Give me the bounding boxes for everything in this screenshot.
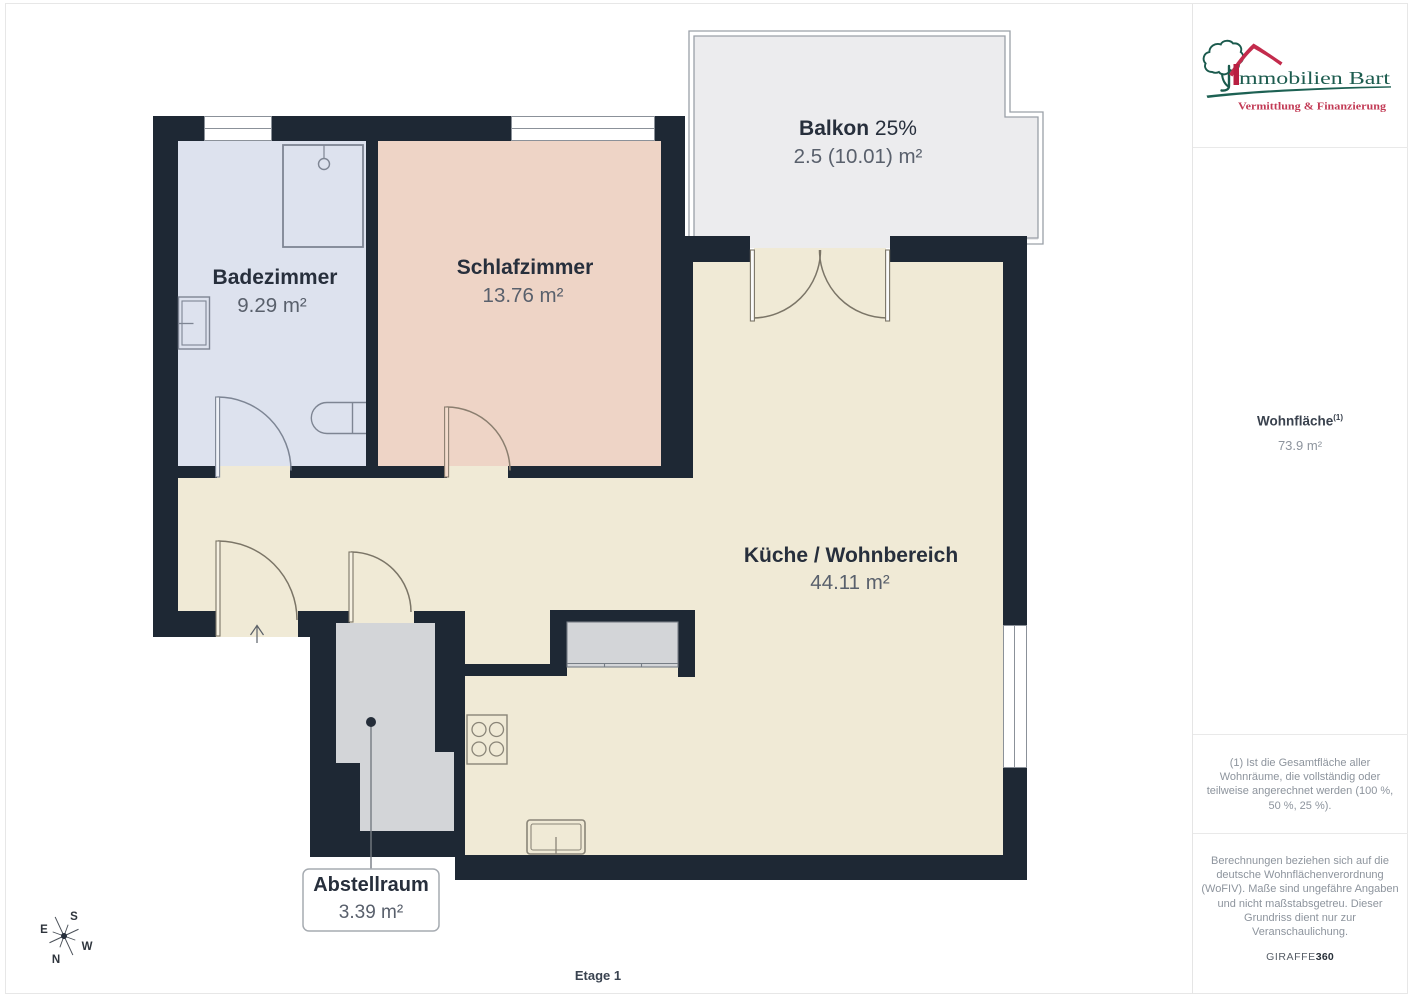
- svg-text:2.5 (10.01) m²: 2.5 (10.01) m²: [794, 145, 923, 168]
- svg-text:Abstellraum: Abstellraum: [313, 874, 429, 896]
- svg-text:Küche / Wohnbereich: Küche / Wohnbereich: [744, 544, 958, 567]
- svg-text:Schlafzimmer: Schlafzimmer: [457, 256, 594, 279]
- svg-text:mmobilien Bart: mmobilien Bart: [1239, 68, 1390, 88]
- svg-text:N: N: [52, 954, 60, 966]
- svg-text:9.29 m²: 9.29 m²: [237, 294, 307, 317]
- svg-text:E: E: [40, 924, 48, 936]
- svg-text:3.39 m²: 3.39 m²: [339, 902, 403, 923]
- svg-text:13.76 m²: 13.76 m²: [483, 284, 564, 307]
- svg-text:Etage 1: Etage 1: [575, 968, 621, 983]
- svg-text:Balkon 25%: Balkon 25%: [799, 117, 917, 140]
- svg-text:Vermittlung & Finanzierung: Vermittlung & Finanzierung: [1238, 102, 1387, 113]
- svg-text:S: S: [70, 911, 78, 923]
- svg-text:Badezimmer: Badezimmer: [213, 266, 338, 289]
- svg-text:44.11 m²: 44.11 m²: [810, 571, 890, 594]
- svg-text:W: W: [82, 941, 93, 953]
